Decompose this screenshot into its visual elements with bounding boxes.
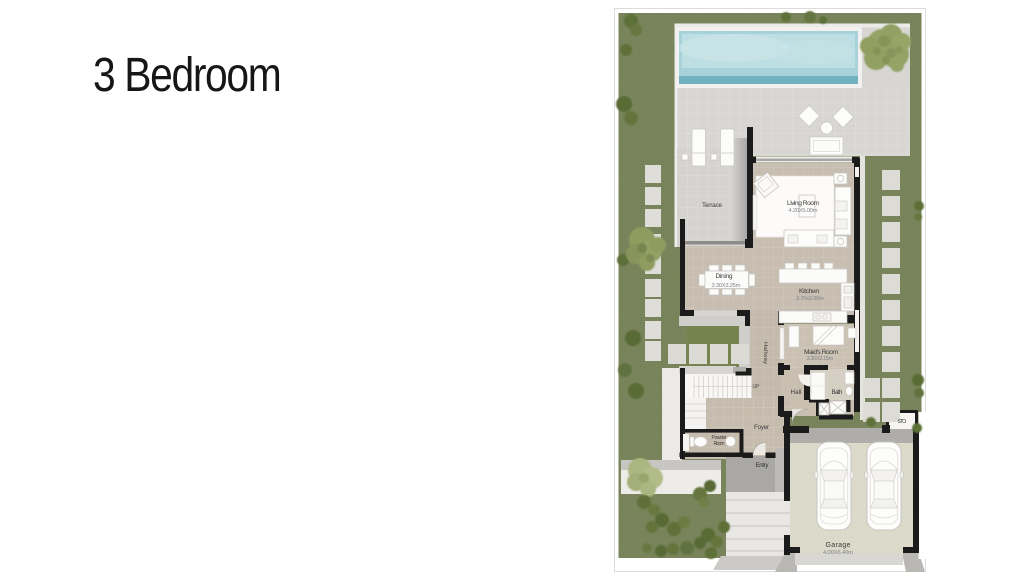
- svg-text:Dining: Dining: [716, 273, 733, 280]
- svg-text:STO.: STO.: [898, 419, 907, 425]
- svg-text:Entry: Entry: [756, 462, 770, 469]
- svg-text:Terrace: Terrace: [702, 202, 722, 209]
- svg-text:Room: Room: [714, 441, 725, 447]
- svg-text:4.00X6.40m: 4.00X6.40m: [823, 550, 853, 556]
- svg-text:3.30X2.15m: 3.30X2.15m: [807, 356, 834, 362]
- svg-text:Living Room: Living Room: [787, 200, 820, 207]
- svg-text:4.20X5.00m: 4.20X5.00m: [789, 208, 818, 214]
- svg-text:UP: UP: [753, 384, 760, 390]
- svg-text:Garage: Garage: [826, 542, 851, 549]
- svg-text:Bath: Bath: [832, 389, 844, 396]
- svg-text:Foyer: Foyer: [754, 424, 769, 431]
- svg-text:Kitchen: Kitchen: [799, 288, 819, 295]
- svg-text:3.30X3.25m: 3.30X3.25m: [712, 283, 741, 289]
- svg-text:Hallway: Hallway: [762, 342, 768, 364]
- svg-text:Maid's Room: Maid's Room: [804, 349, 839, 356]
- svg-text:3.70x2.65m: 3.70x2.65m: [796, 296, 824, 302]
- svg-text:Hall: Hall: [791, 389, 802, 396]
